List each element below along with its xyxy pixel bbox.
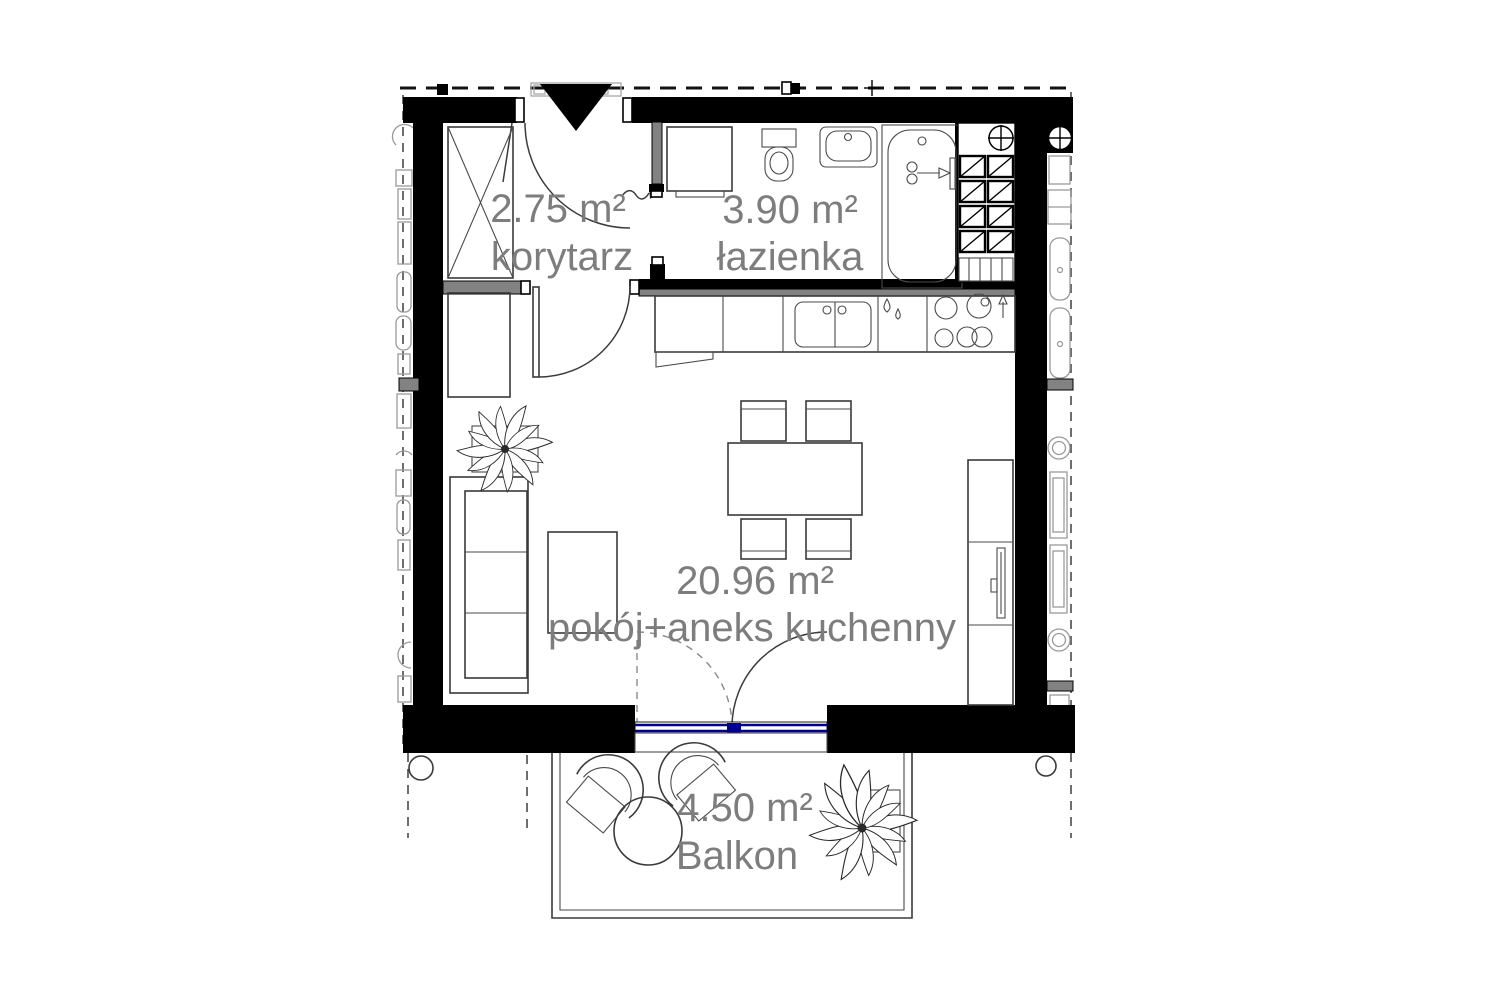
wall-tie-right-upper [1047,379,1073,390]
sofa-icon [450,477,528,693]
entrance-arrow-icon [540,84,612,131]
korytarz-name-label: korytarz [491,235,633,279]
stove-icon [935,294,1007,347]
balkon-name-label: Balkon [676,834,798,878]
ventilation-shaft-icon [958,123,1015,282]
bottom-wall-right [827,705,1075,753]
dining-chair-icon [741,401,851,559]
kitchen-sink-icon [795,302,871,347]
lazienka-area-label: 3.90 m² [722,188,858,232]
dishwasher-icon [884,299,900,319]
bathroom-sink-icon [820,127,877,167]
lazienka-name-label: łazienka [717,235,865,279]
floor-plan: 2.75 m² korytarz 3.90 m² łazienka 20.96 … [0,0,1500,1000]
corridor-partition [443,281,523,294]
balcony-door-sill [635,733,827,752]
bottom-wall-left [403,705,635,753]
wall-tie-left [399,378,419,391]
hall-cabinet-icon [448,293,510,397]
passage-door-icon [533,286,630,377]
floor-plan-drawing: 2.75 m² korytarz 3.90 m² łazienka 20.96 … [0,0,1500,1000]
balcony-door-handle-icon [727,723,741,733]
right-wall [1015,120,1047,753]
balcony-table-icon [614,797,682,865]
top-wall-right [632,97,1073,123]
room-plant-icon [457,403,553,493]
washing-machine-icon [667,127,732,197]
balcony-column-left-icon [409,756,433,780]
left-wall [413,120,443,753]
balcony-column-right-icon [1036,756,1056,776]
neighbor-fixtures-right [1048,156,1071,741]
toilet-icon [762,129,796,181]
tv-cabinet-icon [968,460,1013,705]
bathtub-icon [882,125,962,288]
top-wall-left [403,97,517,123]
balcony-door-icon [635,632,827,752]
bathroom-door-icon [649,122,665,281]
dining-table-icon [728,443,862,515]
korytarz-area-label: 2.75 m² [490,187,626,231]
pokoj-name-label: pokój+aneks kuchenny [548,606,956,650]
pokoj-area-label: 20.96 m² [676,559,834,603]
balkon-area-label: 4.50 m² [677,786,813,830]
wall-tie-right-lower [1047,681,1073,691]
column-marker [1047,123,1073,153]
balcony-plant-icon [810,763,918,882]
